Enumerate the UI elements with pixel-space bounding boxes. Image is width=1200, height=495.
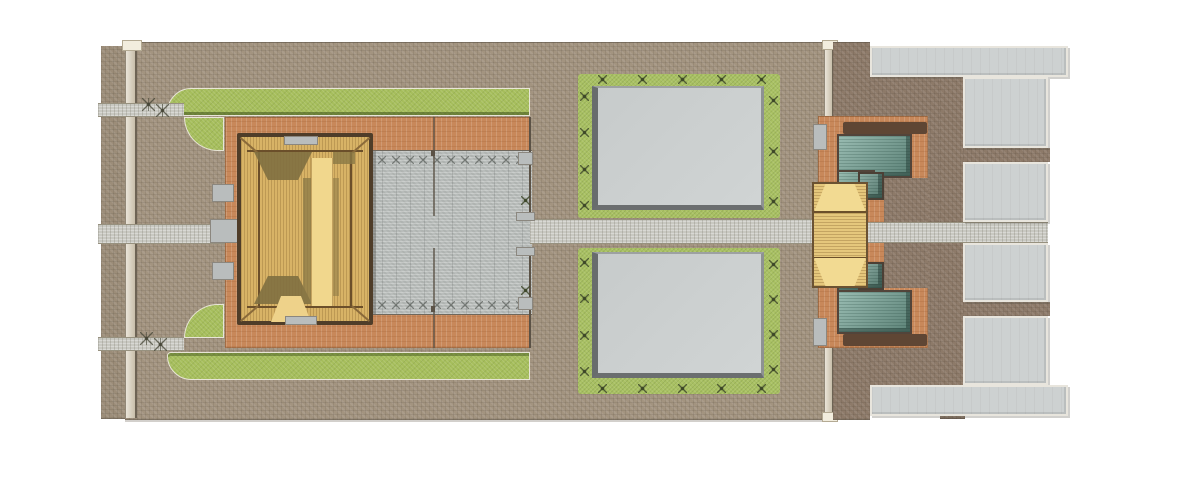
- south-hall-main-roof: [837, 290, 912, 334]
- shrub-icon: [598, 75, 607, 84]
- divider-post: [431, 306, 435, 312]
- pool-shrub-row: [598, 75, 766, 84]
- valley-shadow-west: [303, 178, 311, 303]
- divider-post: [431, 150, 435, 156]
- shrub-icon: [769, 147, 778, 156]
- shrub-icon: [769, 96, 778, 105]
- south-pool: [592, 252, 764, 378]
- gate-hall: [812, 182, 868, 288]
- shrub-icon: [769, 197, 778, 206]
- shrub-icon: [580, 294, 589, 303]
- terrace-east-1: [963, 162, 1048, 222]
- pool-shrub-row: [598, 384, 766, 393]
- entry-path-south: [98, 337, 184, 351]
- tree-icon: [378, 301, 386, 309]
- tree-icon: [392, 156, 400, 164]
- gate-hall-hip-south: [814, 258, 866, 286]
- gate-pier-south: [813, 318, 827, 346]
- shrub-icon: [598, 384, 607, 393]
- terrace-northeast-lower: [963, 77, 1048, 148]
- shrub-icon: [580, 258, 589, 267]
- site-plan-canvas: [0, 0, 1200, 495]
- terrace-east-2: [963, 243, 1048, 302]
- shrub-icon: [717, 75, 726, 84]
- stone-platform: [518, 297, 533, 310]
- terrace-southeast-lower: [870, 385, 1068, 416]
- tree-icon: [392, 301, 400, 309]
- shrub-icon: [769, 295, 778, 304]
- roof-ridge-west-wing: [258, 152, 260, 306]
- shrub-icon: [638, 384, 647, 393]
- shrub-icon: [580, 367, 589, 376]
- pool-shrub-col: [580, 258, 589, 376]
- shrub-icon: [580, 165, 589, 174]
- shrub-icon: [580, 201, 589, 210]
- north-lawn: [167, 88, 530, 116]
- valley-shadow-east: [333, 178, 339, 296]
- shrub-icon: [678, 384, 687, 393]
- south-terrace-steps: [285, 316, 317, 325]
- courtyard-shadow-north: [254, 152, 312, 180]
- tree-icon: [461, 156, 469, 164]
- north-terrace-steps: [284, 136, 318, 145]
- pool-shrub-col: [769, 96, 778, 206]
- tree-icon: [488, 301, 496, 309]
- plaza-tree-row-south: [378, 301, 524, 309]
- stone-platform: [212, 184, 234, 202]
- south-lawn: [167, 352, 530, 380]
- pool-shrub-col: [580, 92, 589, 210]
- roof-ridge-east-wing: [350, 152, 352, 306]
- gate-pier: [516, 212, 535, 221]
- shrub-icon: [580, 92, 589, 101]
- roof-shade-northeast: [333, 152, 355, 164]
- tree-icon: [502, 156, 510, 164]
- shrub-icon: [757, 384, 766, 393]
- shrub-icon: [580, 128, 589, 137]
- shrub-icon: [580, 331, 589, 340]
- wall-cap-northwest: [122, 40, 142, 51]
- gate-pier: [516, 247, 535, 256]
- entry-path-central: [98, 224, 226, 244]
- gate-pier-north: [813, 124, 827, 150]
- tree-icon: [475, 301, 483, 309]
- main-hall: [237, 133, 373, 325]
- courtyard-east-wall-north: [529, 117, 531, 214]
- entry-path-north: [98, 103, 184, 117]
- north-pool: [592, 86, 764, 210]
- plaza-tree-row-north: [378, 156, 524, 164]
- eave-band-south: [843, 334, 927, 346]
- shrub-icon: [678, 75, 687, 84]
- shrub-icon: [769, 260, 778, 269]
- gate-hall-ridge-north: [814, 211, 866, 213]
- courtyard-divider-south: [433, 248, 435, 348]
- east-paving-strip-south: [963, 302, 1050, 316]
- east-paving-strip-north: [963, 148, 1050, 162]
- terrace-northeast-upper: [870, 46, 1068, 77]
- courtyard-divider-north: [433, 117, 435, 216]
- shrub-icon: [638, 75, 647, 84]
- tree-plaza: [368, 150, 532, 315]
- tree-icon: [447, 301, 455, 309]
- shrub-icon: [757, 75, 766, 84]
- stone-platform: [212, 262, 234, 280]
- gate-hall-hip-north: [814, 184, 866, 212]
- terrace-southeast-upper: [963, 316, 1048, 385]
- axis-walkway-east: [866, 222, 1048, 243]
- pool-shrub-col: [769, 260, 778, 374]
- tree-icon: [502, 301, 510, 309]
- shrub-icon: [769, 365, 778, 374]
- tree-icon: [447, 156, 455, 164]
- entry-landing: [210, 219, 238, 243]
- shrub-icon: [717, 384, 726, 393]
- inner-courtyard-strip: [311, 158, 333, 306]
- tree-icon: [419, 156, 427, 164]
- tree-icon: [378, 156, 386, 164]
- tree-icon: [419, 301, 427, 309]
- tree-icon: [488, 156, 496, 164]
- tree-icon: [475, 156, 483, 164]
- shrub-icon: [769, 330, 778, 339]
- stone-platform: [518, 152, 533, 165]
- tree-icon: [461, 301, 469, 309]
- eave-band-north: [843, 122, 927, 134]
- tree-icon: [406, 301, 414, 309]
- tree-icon: [406, 156, 414, 164]
